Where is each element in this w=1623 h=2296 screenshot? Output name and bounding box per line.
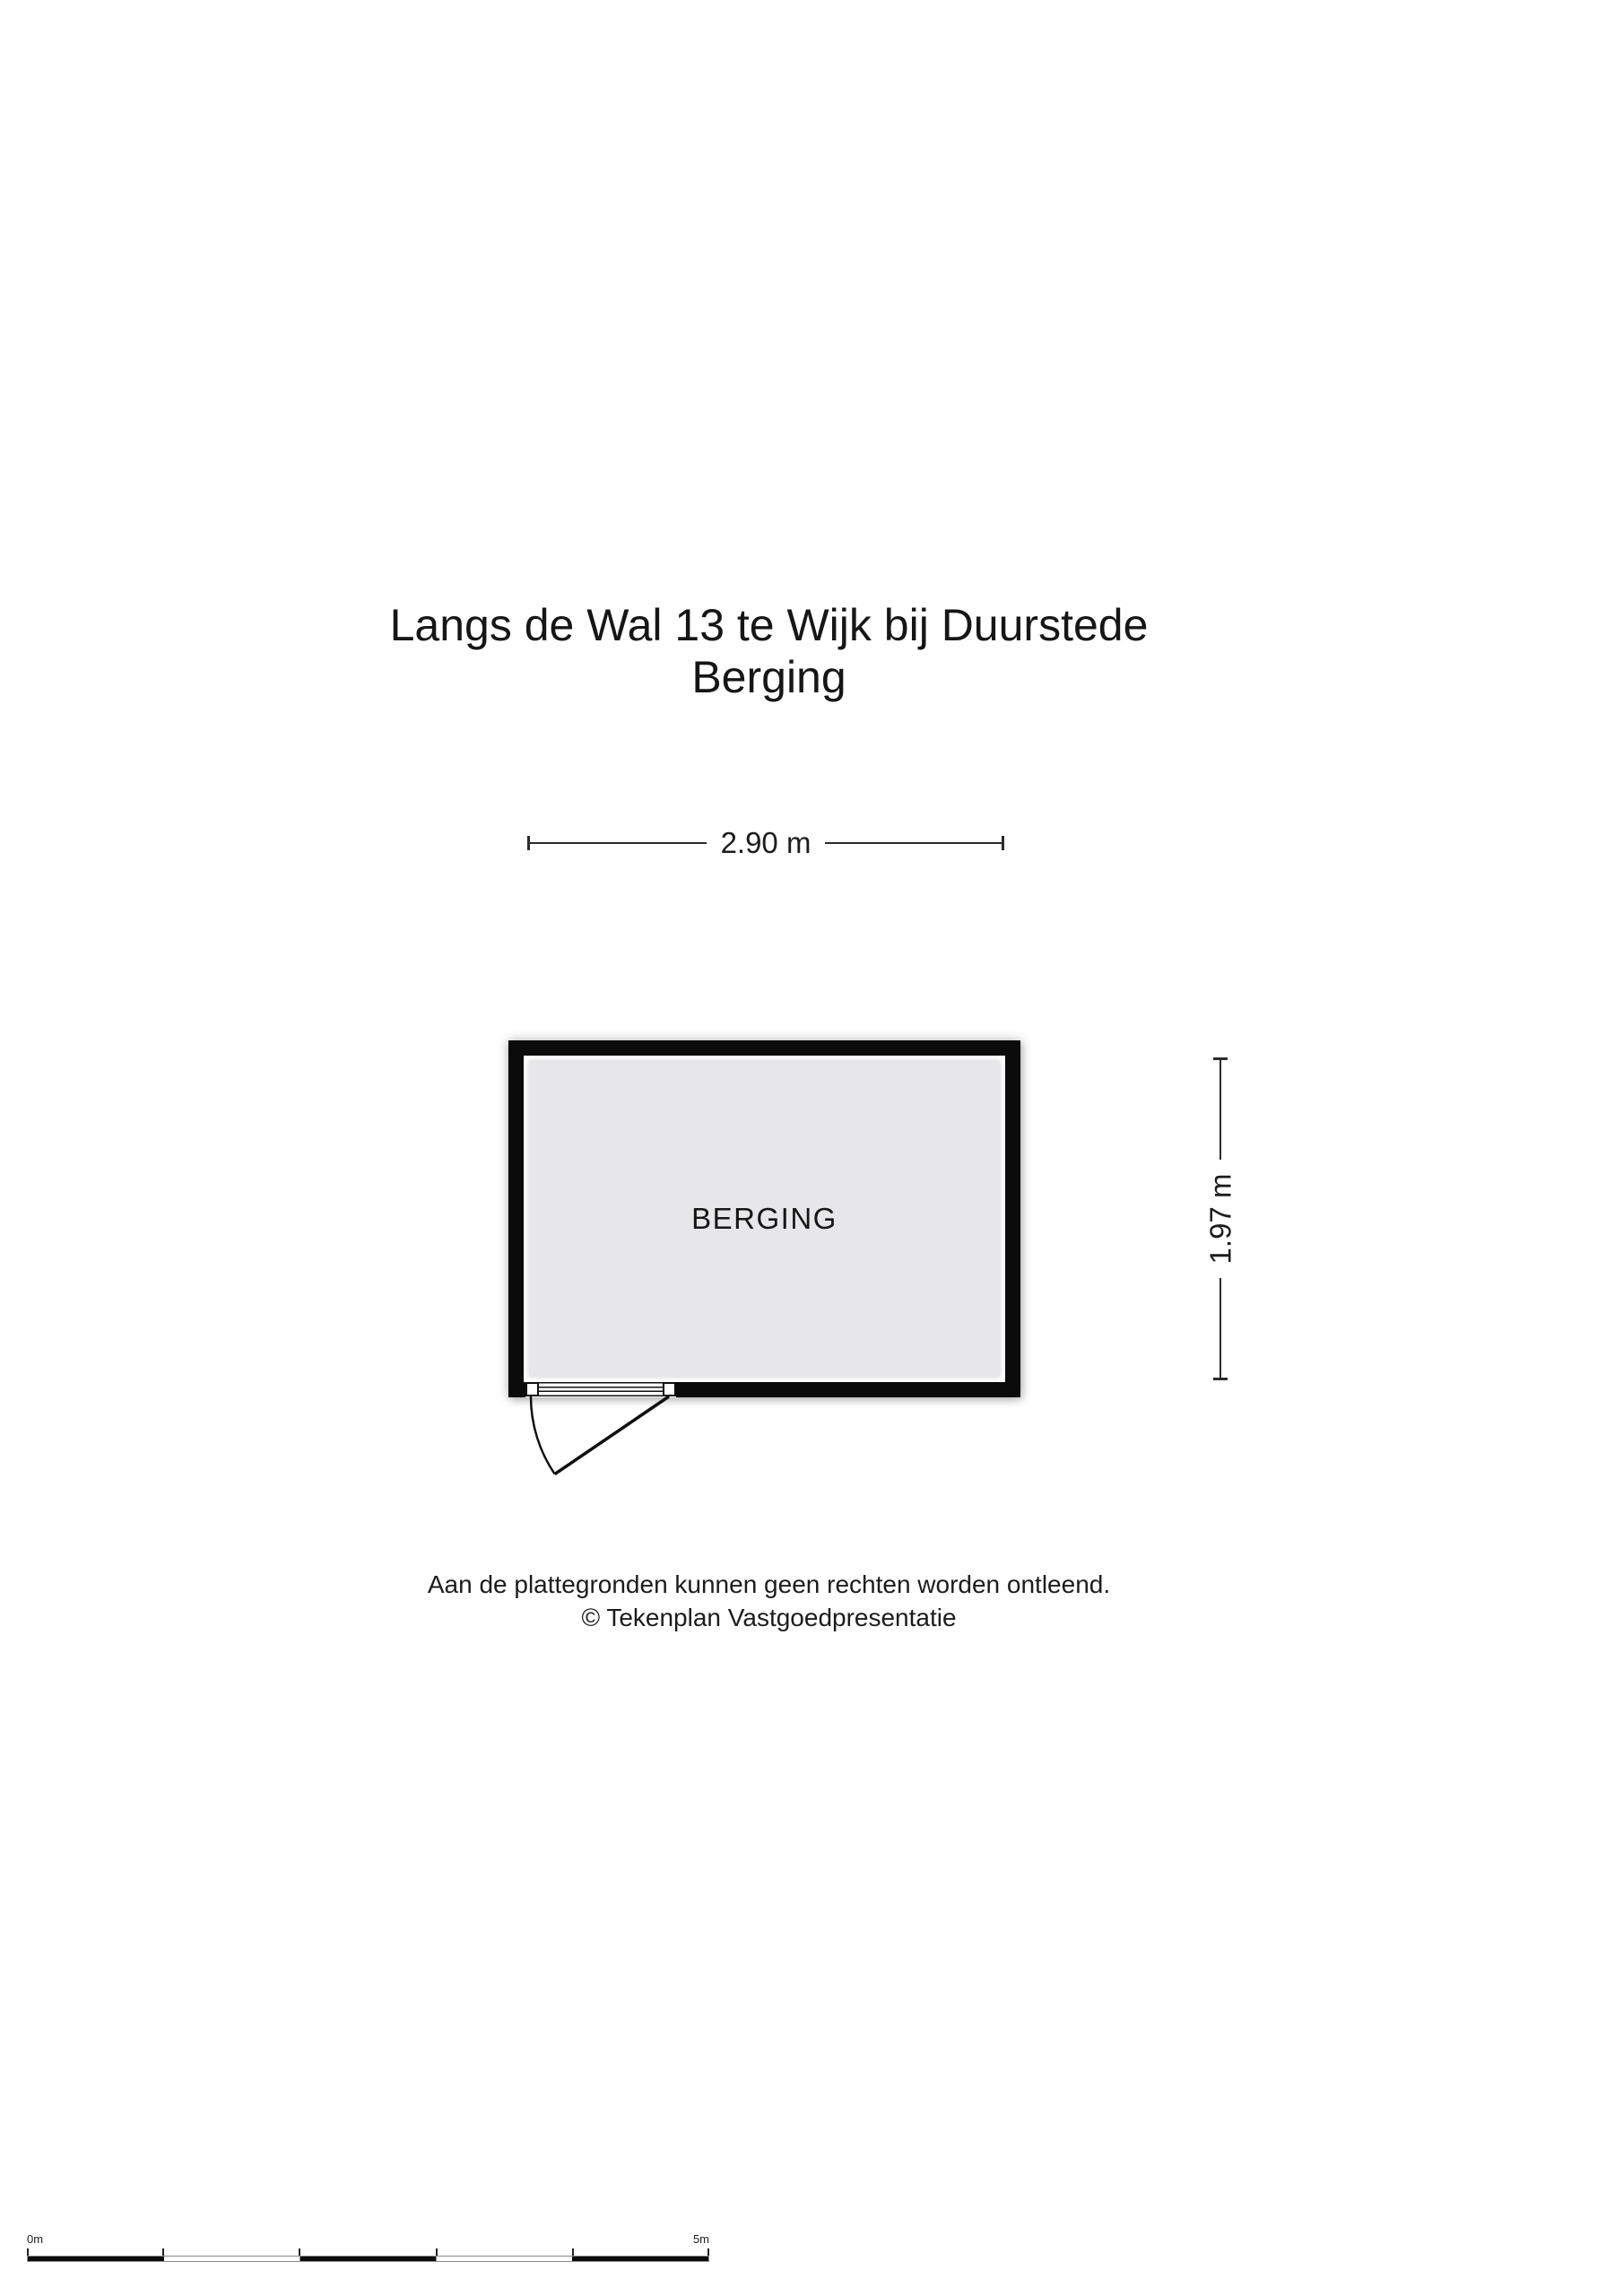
footer-copyright: © Tekenplan Vastgoedpresentatie bbox=[0, 1601, 1538, 1634]
dimension-line bbox=[1219, 1278, 1221, 1378]
dimension-height-text: 1.97 m bbox=[1203, 1174, 1237, 1265]
dimension-width-label: 2.90 m bbox=[707, 826, 826, 860]
scale-label-start: 0m bbox=[27, 2232, 43, 2246]
door-swing-arc-icon bbox=[502, 1379, 717, 1496]
dimension-line bbox=[1219, 1060, 1221, 1160]
dimension-line bbox=[530, 842, 707, 844]
dimension-height: 1.97 m bbox=[1206, 1057, 1235, 1380]
page-title: Langs de Wal 13 te Wijk bij Duurstede Be… bbox=[0, 599, 1538, 703]
footer: Aan de plattegronden kunnen geen rechten… bbox=[0, 1568, 1538, 1634]
dimension-height-label: 1.97 m bbox=[1176, 1160, 1266, 1278]
dimension-width: 2.90 m bbox=[527, 828, 1004, 858]
dimension-tick-icon bbox=[1213, 1378, 1228, 1380]
scale-bar-segments bbox=[27, 2256, 709, 2262]
room-label: BERGING bbox=[524, 1056, 1005, 1382]
footer-disclaimer: Aan de plattegronden kunnen geen rechten… bbox=[0, 1568, 1538, 1601]
dimension-tick-icon bbox=[1002, 836, 1004, 850]
scale-label-end: 5m bbox=[693, 2232, 709, 2246]
room-berging: BERGING bbox=[508, 1040, 1020, 1397]
title-floor-name: Berging bbox=[0, 651, 1538, 703]
room-interior: BERGING bbox=[524, 1056, 1005, 1382]
scale-bar: 0m 5m bbox=[27, 2232, 709, 2263]
title-address: Langs de Wal 13 te Wijk bij Duurstede bbox=[0, 599, 1538, 651]
dimension-line bbox=[825, 842, 1002, 844]
floorplan-page: Langs de Wal 13 te Wijk bij Duurstede Be… bbox=[0, 0, 1623, 2296]
